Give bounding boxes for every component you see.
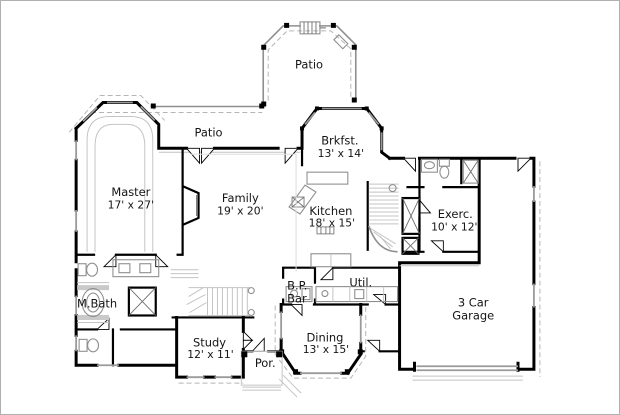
label-bp: B.P. [287,279,307,293]
door-icon [243,331,252,340]
label-garage-1: 3 Car [458,296,489,310]
fireplace-icon [183,186,199,225]
door-icon [97,318,109,329]
stairs-icon-back [369,184,399,252]
garage-door-icon [413,366,523,380]
label-dining-dims: 13' x 15' [303,343,349,356]
door-icon [431,241,443,252]
door-icon [252,338,264,351]
label-exercise: Exerc. [438,207,473,221]
label-patio-back: Patio [194,125,222,139]
door-icon [368,340,380,351]
floor-plan-page: Patio Patio Brkfst. 13' x 14' Master 17'… [0,0,620,415]
label-kitchen-dims: 18' x 15' [309,216,355,229]
double-door-icon [187,148,200,163]
stairs-icon-main [187,288,255,316]
label-master-bath: M.Bath [77,297,117,311]
label-brkfst-dims: 13' x 14' [318,147,364,160]
toilet-icon [439,159,449,178]
label-master-dims: 17' x 27' [108,199,154,212]
kitchen-sink-icon [292,197,304,207]
door-icon [419,200,430,213]
door-icon [104,255,116,267]
fixtures [77,116,478,351]
label-family: Family [222,191,259,205]
door-icon [243,340,252,349]
door-icon [518,158,531,171]
closet-icon [403,198,420,234]
label-utility: Util. [349,276,372,290]
label-porch: Por. [255,356,276,370]
label-exercise-dims: 10' x 12' [431,220,477,233]
sink-icon [421,159,437,172]
grill-icon [300,22,326,34]
label-garage-2: Garage [452,308,494,322]
double-door-icon [202,148,215,163]
toilet-icon [79,339,98,352]
patio-posts [151,23,357,109]
label-patio-top: Patio [295,58,323,72]
floor-plan-svg: Patio Patio Brkfst. 13' x 14' Master 17'… [1,1,619,414]
label-master: Master [111,185,150,199]
patio-door-icon [334,35,348,49]
door-icon [291,305,302,316]
label-family-dims: 19' x 20' [217,204,263,217]
steps-icon [171,270,199,278]
door-icon [321,268,333,280]
closet-icon [463,160,478,183]
shower-icon [129,288,156,316]
stairs [171,184,399,315]
door-icon [404,158,416,171]
toilet-icon [78,263,97,276]
label-study-dims: 12' x 11' [187,348,233,361]
label-brkfst: Brkfst. [321,133,358,147]
interior-walls [76,148,479,365]
vanity-icon [113,260,159,277]
label-bar: Bar [287,292,307,306]
door-icon [156,255,168,267]
